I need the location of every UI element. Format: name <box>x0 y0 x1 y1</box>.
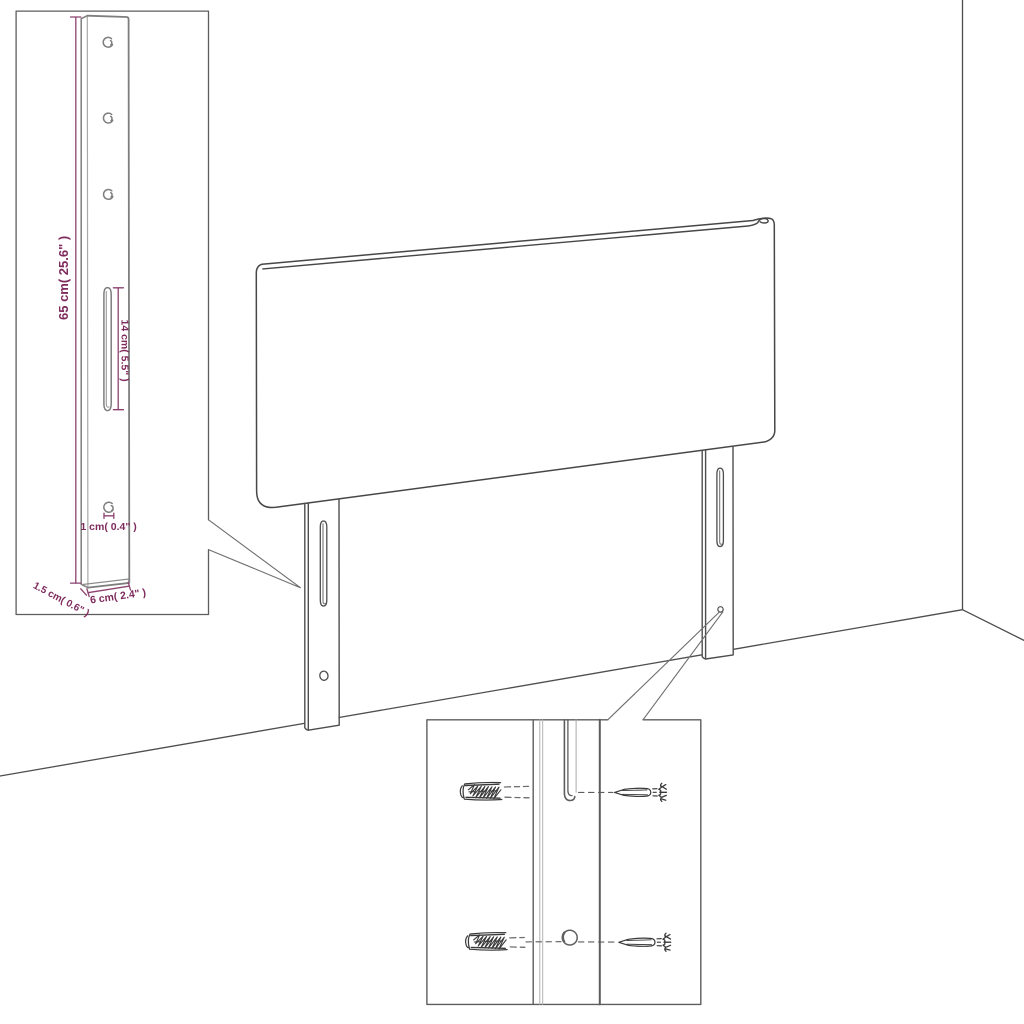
svg-text:65 cm( 25.6" ): 65 cm( 25.6" ) <box>56 236 71 320</box>
svg-text:14 cm( 5.5" ): 14 cm( 5.5" ) <box>118 320 130 382</box>
svg-text:1 cm( 0.4" ): 1 cm( 0.4" ) <box>80 521 136 533</box>
